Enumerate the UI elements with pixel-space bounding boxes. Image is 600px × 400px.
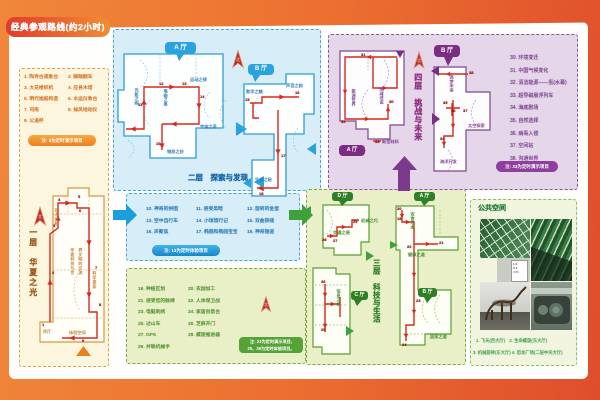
svg-text:北: 北: [38, 213, 42, 219]
svg-text:北: 北: [417, 57, 421, 63]
svg-text:北: 北: [236, 56, 240, 62]
svg-text:北: 北: [264, 301, 268, 307]
